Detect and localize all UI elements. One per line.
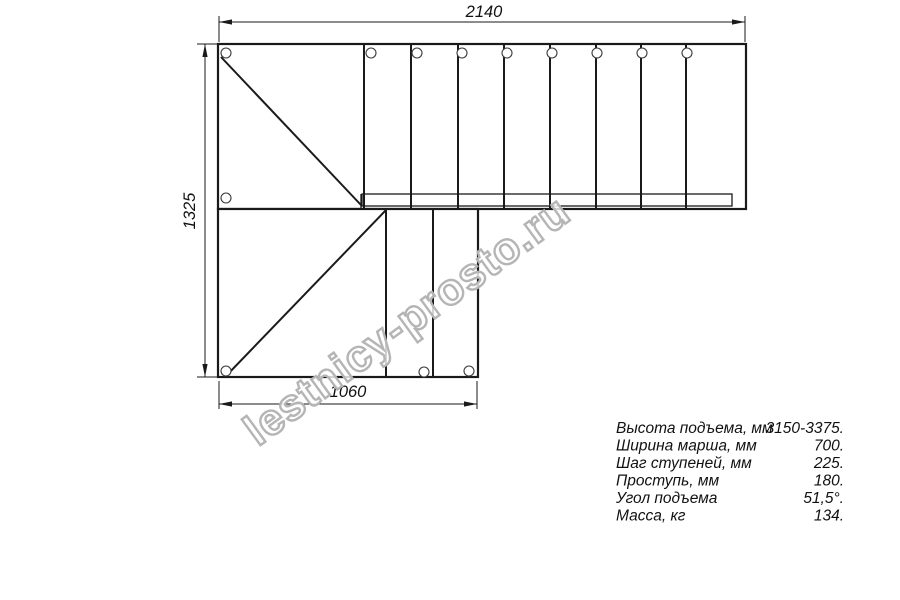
mount-hole (366, 48, 376, 58)
spec-label: Масса, кг (616, 508, 686, 525)
stair-drawing-page: 2140 1325 1060 lestnicy-prosto.ru Высота… (0, 0, 900, 600)
spec-label: Угол подъема (615, 490, 718, 507)
spec-value: 134. (814, 508, 844, 525)
mount-hole (419, 367, 429, 377)
dimension-top: 2140 (219, 3, 745, 42)
mount-hole (464, 366, 474, 376)
dim-arrowhead (202, 44, 207, 57)
dimension-left: 1325 (181, 44, 217, 377)
dim-width-label: 2140 (465, 3, 504, 21)
mount-hole (637, 48, 647, 58)
mount-hole (682, 48, 692, 58)
mount-hole (457, 48, 467, 58)
dim-arrowhead (202, 364, 207, 377)
spec-label: Шаг ступеней, мм (616, 455, 752, 472)
dim-height-label: 1325 (181, 192, 199, 230)
spec-value: 700. (814, 438, 844, 455)
spec-label: Проступь, мм (616, 473, 719, 490)
mount-hole (221, 48, 231, 58)
spec-value: 51,5°. (803, 490, 844, 507)
dim-arrowhead (219, 19, 232, 24)
mount-hole (221, 366, 231, 376)
spec-value: 180. (814, 473, 844, 490)
spec-label: Ширина марша, мм (616, 438, 757, 455)
spec-value: 3150-3375. (766, 420, 844, 437)
spec-label: Высота подъема, мм (616, 420, 773, 437)
dim-arrowhead (219, 401, 232, 406)
stair-plan-canvas: 2140 1325 1060 lestnicy-prosto.ru Высота… (0, 0, 900, 600)
mount-hole (221, 193, 231, 203)
flight-top-outline (218, 44, 746, 209)
mount-hole (547, 48, 557, 58)
spec-value: 225. (813, 455, 844, 472)
mount-hole (592, 48, 602, 58)
mount-hole (412, 48, 422, 58)
dim-arrowhead (464, 401, 477, 406)
spec-table: Высота подъема, мм 3150-3375. Ширина мар… (615, 420, 844, 525)
dim-arrowhead (732, 19, 745, 24)
stair-plan (218, 44, 746, 377)
mount-hole (502, 48, 512, 58)
